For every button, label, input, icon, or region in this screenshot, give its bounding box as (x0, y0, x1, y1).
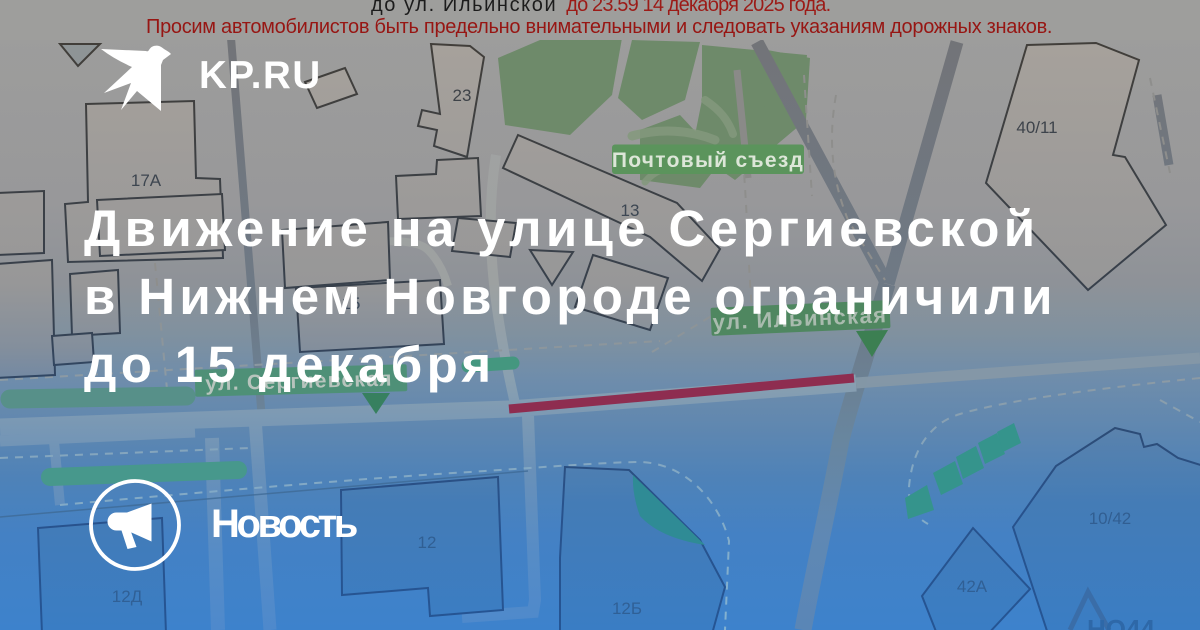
svg-text:42А: 42А (957, 577, 988, 596)
svg-text:23: 23 (453, 86, 472, 105)
svg-text:12Б: 12Б (612, 599, 642, 618)
svg-text:12: 12 (418, 533, 437, 552)
svg-text:НО44: НО44 (1087, 614, 1155, 630)
svg-text:Почтовый съезд: Почтовый съезд (612, 149, 804, 172)
svg-text:17А: 17А (131, 171, 162, 190)
svg-text:40/11: 40/11 (1016, 118, 1057, 137)
svg-text:12Д: 12Д (112, 587, 143, 606)
svg-text:10/42: 10/42 (1089, 509, 1132, 528)
